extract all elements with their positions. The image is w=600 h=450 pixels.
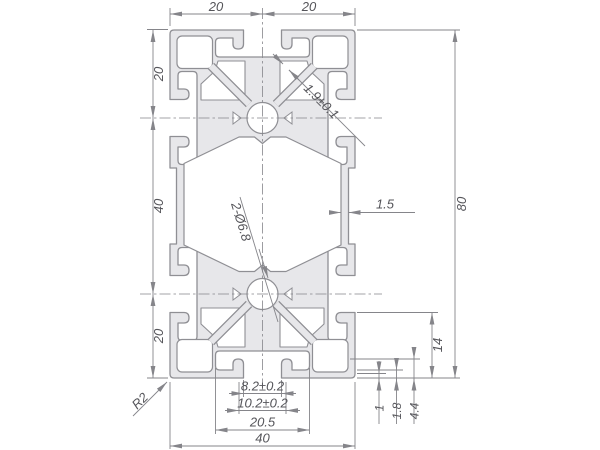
extrusion-profile-drawing: 20 20 20 40 20 80 1.9±0.1 — [0, 0, 600, 450]
dim-label-left-middle: 40 — [151, 198, 166, 213]
dim-label-face-lip: 1.8 — [390, 402, 404, 419]
dim-label-hook-depth: 4.4 — [408, 402, 422, 419]
chamber-bottom-left — [177, 340, 213, 373]
chamber-top-left — [177, 36, 213, 69]
dim-label-top-width-left: 20 — [208, 0, 224, 14]
dim-label-slot-opening: 8.2±0.2 — [241, 379, 285, 394]
dim-label-slot-cavity: 20.5 — [249, 415, 276, 430]
dim-label-left-bottom: 20 — [151, 328, 166, 344]
dim-label-top-width-right: 20 — [301, 0, 317, 14]
dim-step — [357, 361, 386, 424]
dim-label-left-top: 20 — [151, 66, 166, 82]
chamber-top-right — [313, 36, 349, 69]
technical-drawing-page: 20 20 20 40 20 80 1.9±0.1 — [0, 0, 600, 450]
chamber-bottom-right — [313, 340, 349, 373]
dim-label-corner-radius: R2 — [129, 389, 152, 412]
dim-label-slot-depth: 14 — [430, 338, 445, 352]
dim-label-overall-width: 40 — [255, 431, 270, 446]
dim-overall-height — [357, 30, 460, 378]
dim-label-overall-height: 80 — [454, 196, 469, 211]
dim-label-step: 1 — [373, 405, 387, 412]
dim-slot-depth — [357, 313, 438, 379]
dim-label-wall-thickness: 1.5 — [376, 197, 395, 212]
dim-label-slot-neck: 10.2±0.2 — [237, 396, 288, 411]
